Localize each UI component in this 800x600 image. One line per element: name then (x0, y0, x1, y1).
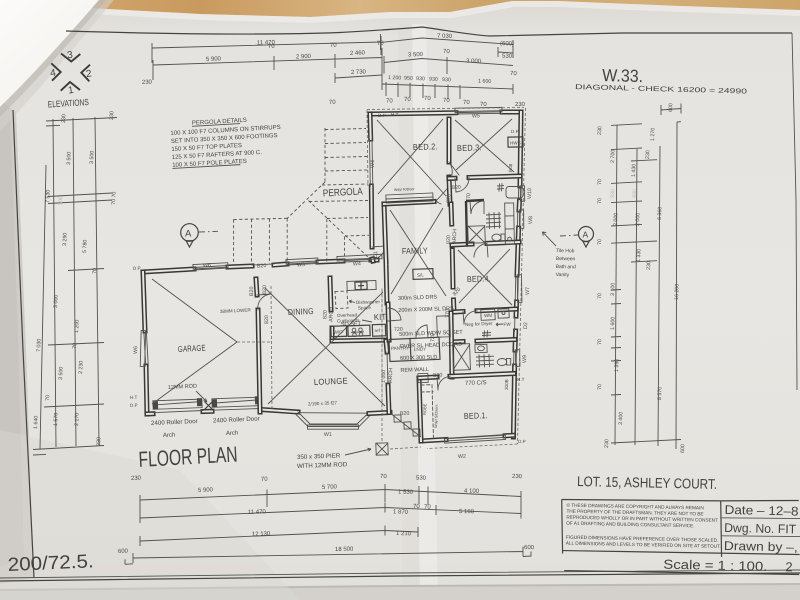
svg-text:3 400: 3 400 (618, 412, 624, 426)
svg-text:BED.1.: BED.1. (464, 410, 488, 421)
svg-text:930: 930 (632, 189, 638, 198)
svg-text:950: 950 (404, 76, 413, 82)
svg-text:D1: D1 (373, 251, 379, 258)
svg-text:W6: W6 (133, 346, 139, 354)
svg-text:70: 70 (597, 179, 603, 185)
svg-text:70: 70 (386, 98, 393, 105)
svg-text:300B: 300B (504, 379, 509, 390)
svg-text:6 360: 6 360 (657, 207, 663, 221)
svg-text:230: 230 (515, 101, 526, 108)
svg-text:70: 70 (329, 99, 337, 106)
svg-text:5 700: 5 700 (322, 483, 338, 491)
svg-text:1 330: 1 330 (636, 249, 642, 263)
svg-text:FW: FW (503, 322, 511, 327)
svg-text:D.P: D.P (378, 113, 386, 118)
svg-text:930: 930 (429, 77, 438, 83)
svg-text:2 700: 2 700 (610, 150, 616, 164)
svg-text:930: 930 (416, 76, 425, 82)
svg-text:230: 230 (604, 439, 610, 448)
svg-text:3 500: 3 500 (58, 366, 65, 380)
svg-text:3 000: 3 000 (53, 294, 60, 308)
svg-text:B20: B20 (433, 373, 443, 379)
svg-text:2 170: 2 170 (74, 412, 81, 426)
svg-text:Dwg. No. FIT: Dwg. No. FIT (724, 521, 797, 537)
svg-text:500: 500 (58, 196, 64, 205)
svg-text:600: 600 (668, 103, 674, 112)
svg-text:230: 230 (512, 473, 523, 480)
svg-text:ARCH: ARCH (329, 307, 335, 322)
svg-text:Space: Space (358, 305, 372, 310)
svg-text:1 530: 1 530 (398, 489, 414, 496)
svg-text:3 100: 3 100 (610, 283, 616, 297)
svg-text:70: 70 (510, 70, 518, 77)
svg-text:W4: W4 (353, 261, 361, 267)
svg-text:70: 70 (597, 239, 603, 245)
svg-text:W2: W2 (458, 454, 466, 460)
svg-text:B08: B08 (508, 163, 513, 172)
svg-text:Date – 12–8: Date – 12–8 (724, 503, 798, 519)
svg-text:930: 930 (442, 77, 451, 83)
svg-text:7 030: 7 030 (36, 338, 43, 352)
svg-text:5 160: 5 160 (459, 508, 475, 515)
svg-text:820: 820 (264, 315, 270, 324)
svg-text:11 470: 11 470 (248, 508, 267, 516)
svg-text:1 210: 1 210 (396, 530, 412, 537)
svg-text:Tile Hob: Tile Hob (556, 248, 575, 254)
svg-text:HWS: HWS (510, 140, 521, 145)
svg-text:2 000: 2 000 (613, 213, 619, 227)
svg-text:1 590: 1 590 (614, 359, 620, 373)
svg-text:70 70: 70 70 (111, 191, 118, 205)
svg-text:Between: Between (556, 256, 576, 262)
svg-text:12 130: 12 130 (252, 530, 271, 538)
svg-text:WM: WM (484, 313, 493, 318)
svg-text:H.T: H.T (517, 377, 525, 382)
svg-text:Arch: Arch (163, 431, 176, 439)
svg-text:5 900: 5 900 (198, 486, 214, 494)
svg-text:70: 70 (597, 339, 603, 345)
svg-text:W7: W7 (525, 287, 531, 295)
svg-text:820: 820 (446, 194, 452, 203)
svg-text:70: 70 (330, 42, 338, 49)
svg-text:70: 70 (463, 99, 470, 106)
svg-text:3 290: 3 290 (62, 232, 69, 246)
svg-text:3 500: 3 500 (66, 151, 73, 165)
svg-text:Wdy! S/Doors: Wdy! S/Doors (434, 404, 439, 428)
svg-text:770 C/S: 770 C/S (465, 379, 487, 387)
svg-text:200/72.5.: 200/72.5. (7, 551, 94, 576)
svg-text:70: 70 (597, 198, 603, 204)
svg-text:70: 70 (443, 97, 450, 104)
svg-text:ARCH: ARCH (452, 229, 458, 244)
svg-text:REM WALL: REM WALL (400, 367, 429, 374)
svg-text:600: 600 (680, 444, 686, 453)
svg-text:W6: W6 (203, 263, 211, 269)
svg-text:70: 70 (380, 473, 387, 480)
svg-text:230: 230 (646, 261, 652, 270)
svg-text:B20: B20 (257, 263, 267, 269)
svg-text:W9: W9 (522, 355, 528, 363)
svg-text:8 570: 8 570 (657, 387, 663, 401)
svg-text:600: 600 (118, 548, 129, 555)
svg-text:70: 70 (597, 384, 603, 390)
svg-text:70: 70 (443, 48, 451, 55)
svg-text:H.T: H.T (391, 112, 399, 117)
svg-text:1 200: 1 200 (74, 319, 81, 333)
svg-text:5 780: 5 780 (82, 239, 89, 253)
svg-text:70: 70 (72, 343, 78, 349)
svg-text:W10: W10 (527, 188, 533, 199)
svg-text:3 000: 3 000 (466, 58, 482, 66)
svg-text:A: A (185, 229, 192, 240)
svg-text:3 500: 3 500 (89, 150, 96, 164)
svg-text:7 530: 7 530 (45, 189, 52, 203)
svg-text:70: 70 (480, 101, 487, 108)
svg-text:2 000: 2 000 (635, 213, 641, 227)
svg-text:D.P: D.P (133, 266, 141, 271)
svg-text:70: 70 (404, 96, 411, 103)
svg-text:KIT.: KIT. (374, 312, 388, 322)
svg-text:Arch: Arch (226, 429, 239, 437)
svg-text:ARCH: ARCH (388, 368, 394, 383)
svg-text:18 500: 18 500 (335, 546, 354, 553)
svg-text:600: 600 (524, 544, 535, 551)
svg-text:S/L: S/L (417, 272, 425, 277)
svg-text:Dishwasher: Dishwasher (356, 299, 381, 305)
svg-text:W.33.: W.33. (602, 65, 644, 86)
svg-text:W1: W1 (324, 432, 332, 438)
svg-text:D.P: D.P (130, 403, 138, 408)
svg-text:70: 70 (424, 95, 431, 102)
svg-text:1 270: 1 270 (650, 128, 656, 142)
svg-text:W5: W5 (472, 113, 480, 119)
svg-text:7 030: 7 030 (437, 33, 453, 41)
svg-text:1 000: 1 000 (381, 370, 387, 383)
svg-text:2 460: 2 460 (350, 49, 366, 57)
svg-text:3 500: 3 500 (408, 51, 424, 59)
svg-text:W3: W3 (297, 262, 305, 268)
svg-text:A: A (583, 230, 589, 240)
svg-text:230: 230 (142, 79, 153, 86)
svg-text:BED.3.: BED.3. (457, 142, 482, 153)
svg-text:230: 230 (96, 437, 102, 446)
svg-text:GARAGE: GARAGE (178, 343, 207, 354)
svg-text:BED.2.: BED.2. (413, 141, 438, 152)
svg-text:1 640: 1 640 (33, 415, 40, 429)
svg-text:1 870: 1 870 (393, 509, 409, 516)
svg-text:1 600: 1 600 (478, 79, 492, 85)
svg-text:930: 930 (610, 189, 616, 198)
svg-text:LOUNGE: LOUNGE (314, 376, 348, 387)
svg-text:230: 230 (61, 114, 67, 123)
svg-text:Scale = 1 : 100.: Scale = 1 : 100. (663, 557, 767, 574)
svg-text:DINING: DINING (288, 306, 314, 317)
svg-text:1 430: 1 430 (631, 164, 637, 178)
svg-text:70: 70 (268, 43, 276, 50)
svg-text:70: 70 (597, 293, 603, 299)
svg-text:770: 770 (466, 193, 472, 202)
svg-text:H.T: H.T (130, 395, 138, 400)
svg-text:530: 530 (416, 475, 427, 482)
svg-text:2 230: 2 230 (78, 360, 85, 374)
svg-text:W4: W4 (370, 160, 376, 168)
svg-text:Vanity: Vanity (556, 272, 570, 278)
svg-text:D.P: D.P (518, 439, 526, 444)
svg-text:Bath and: Bath and (556, 264, 576, 270)
svg-text:230: 230 (597, 126, 603, 135)
svg-text:70: 70 (45, 395, 51, 401)
svg-text:SQ SET: SQ SET (341, 321, 362, 328)
svg-text:820: 820 (452, 185, 461, 191)
svg-text:2 730: 2 730 (351, 68, 367, 76)
svg-text:16 200: 16 200 (674, 284, 681, 300)
svg-text:PERGOLA: PERGOLA (323, 186, 364, 199)
svg-text:530: 530 (502, 53, 513, 60)
svg-text:1 570: 1 570 (53, 412, 60, 426)
svg-text:1 200: 1 200 (388, 75, 402, 81)
svg-text:1 600: 1 600 (610, 317, 616, 331)
svg-text:230: 230 (645, 150, 651, 159)
svg-text:2 900: 2 900 (296, 53, 312, 61)
svg-text:D2: D2 (523, 322, 529, 329)
svg-text:70: 70 (92, 268, 98, 274)
svg-text:(600): (600) (500, 40, 514, 47)
svg-text:230: 230 (131, 475, 142, 482)
svg-text:LOT. 15, ASHLEY COURT.: LOT. 15, ASHLEY COURT. (577, 473, 717, 492)
svg-text:820: 820 (262, 285, 268, 294)
svg-text:D.P: D.P (511, 129, 519, 134)
svg-text:230: 230 (109, 111, 115, 120)
svg-text:W/O: W/O (333, 329, 343, 334)
svg-text:2: 2 (785, 559, 793, 574)
svg-text:4 100: 4 100 (464, 488, 480, 495)
svg-text:70: 70 (261, 476, 269, 483)
svg-text:Drawn by –,: Drawn by –, (724, 539, 798, 555)
svg-text:W8: W8 (528, 216, 534, 224)
svg-text:B20: B20 (249, 286, 255, 296)
svg-text:ROBE: ROBE (422, 403, 427, 415)
svg-text:ref: ref (374, 328, 380, 333)
svg-text:5 900: 5 900 (206, 55, 222, 63)
